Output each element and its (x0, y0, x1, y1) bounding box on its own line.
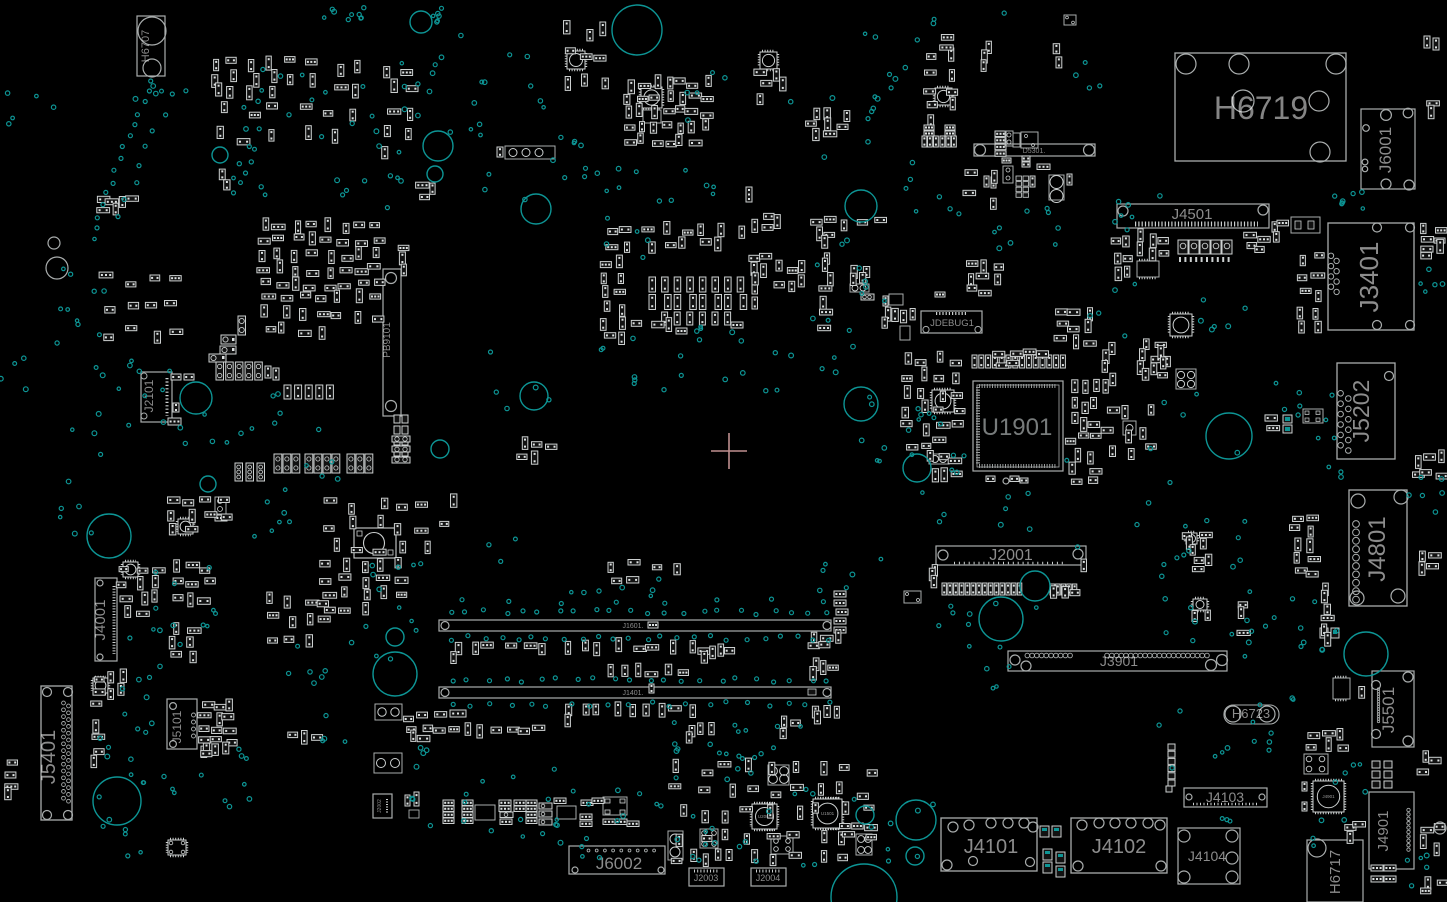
svg-text:J5501: J5501 (1379, 687, 1398, 733)
svg-text:J2001: J2001 (989, 547, 1033, 564)
svg-text:J4901: J4901 (1375, 811, 1392, 852)
svg-text:J6001: J6001 (1376, 127, 1395, 173)
svg-text:J4801: J4801 (1364, 516, 1391, 581)
svg-text:J5401: J5401 (38, 730, 60, 785)
svg-text:PB9101: PB9101 (382, 322, 393, 358)
svg-text:J2101: J2101 (142, 379, 156, 412)
svg-text:J4501: J4501 (1172, 206, 1213, 223)
svg-text:H6707: H6707 (140, 30, 152, 62)
svg-text:J2002: J2002 (377, 799, 383, 813)
svg-text:J4102: J4102 (1092, 836, 1147, 858)
svg-text:J1601.: J1601. (622, 623, 643, 630)
svg-text:J4901: J4901 (1322, 794, 1335, 799)
svg-text:J3401: J3401 (1354, 242, 1384, 313)
svg-text:H6717: H6717 (1327, 850, 1344, 894)
svg-text:J4103: J4103 (1206, 789, 1244, 805)
svg-text:JDEBUG1: JDEBUG1 (930, 318, 974, 329)
svg-text:J6002: J6002 (596, 854, 642, 873)
svg-text:J1401.: J1401. (622, 690, 643, 697)
svg-text:U1901: U1901 (982, 414, 1053, 441)
svg-text:J2003: J2003 (694, 873, 719, 883)
svg-text:J3901: J3901 (1100, 653, 1138, 669)
svg-text:J4101: J4101 (964, 836, 1019, 858)
svg-text:H6719: H6719 (1214, 90, 1308, 126)
svg-text:J4104: J4104 (1188, 848, 1226, 864)
svg-text:J5101: J5101 (170, 710, 184, 743)
svg-text:J4001: J4001 (92, 600, 109, 641)
svg-text:D5301.: D5301. (1023, 148, 1046, 155)
svg-text:U1501: U1501 (821, 811, 835, 816)
svg-text:J2004: J2004 (756, 873, 781, 883)
svg-text:H6723: H6723 (1232, 706, 1270, 721)
svg-text:J5202: J5202 (1348, 380, 1374, 443)
